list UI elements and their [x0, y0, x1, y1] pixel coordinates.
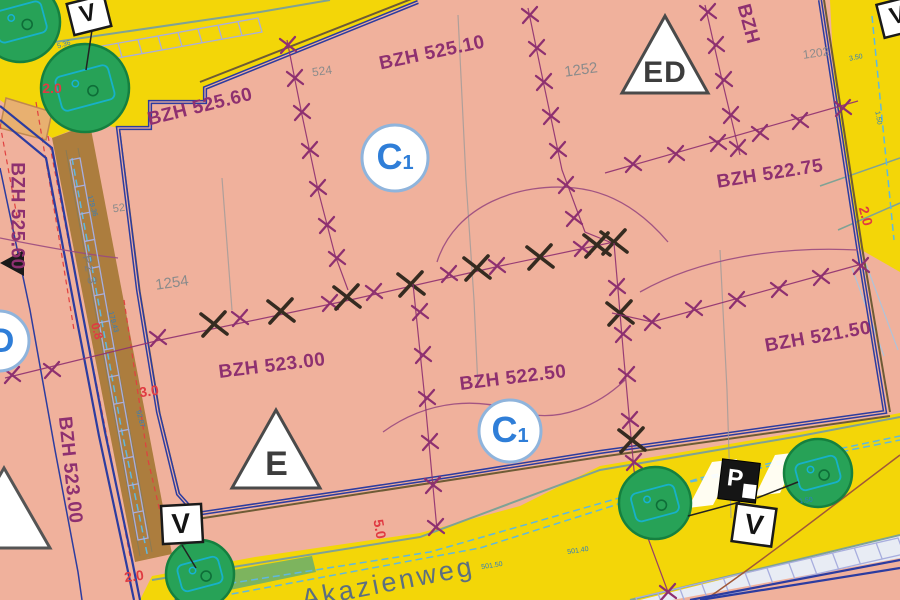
parking-sign: [718, 459, 761, 503]
tree-icon: [784, 439, 852, 507]
parking-sign-sub-box: [742, 484, 757, 499]
tree-icon: [41, 44, 129, 132]
zone-c1-circle-top: [362, 125, 428, 191]
v-box-bottom-right: [732, 503, 777, 546]
zone-c1-circle-bottom: [479, 400, 541, 462]
tree-icon: [166, 540, 234, 600]
v-box-left: [161, 504, 203, 544]
map-canvas: [0, 0, 900, 600]
tree-icon: [619, 467, 691, 539]
zoning-map: BZH 525.60 BZH 525.10 BZH 522.75 BZH 523…: [0, 0, 900, 600]
